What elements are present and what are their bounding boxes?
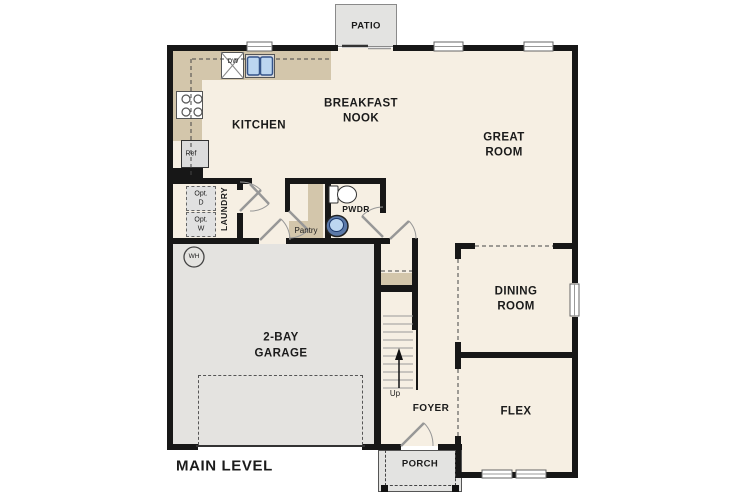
wall-right-lower [572,317,578,478]
fixture-label-water-heater: WH [189,254,200,261]
fixture-label-opt-dryer-line2: D [198,200,203,207]
wall-left [167,45,173,450]
wall-top-right [393,45,578,51]
wall-powder-east [380,178,386,213]
wall-closet-east [412,238,418,330]
wall-dining-flex-divider [455,352,578,358]
wall-closet-south [381,285,412,292]
wall-garage-bottom-left [167,444,198,450]
fixture-label-dishwasher: DW [228,59,239,66]
room-label-foyer: FOYER [413,404,449,414]
room-label-great-line1: GREAT [483,132,524,144]
room-label-laundry: LAUNDRY [220,187,229,231]
pantry-shelf-vertical [308,184,323,224]
wall-top-left [167,45,338,51]
dishwasher-box [221,52,244,79]
room-label-pantry: Pantry [294,227,317,235]
fixture-label-refrigerator: Ref [186,151,197,158]
garage-door-dashed-area [198,375,363,445]
closet-shelf [381,273,412,285]
fixture-label-opt-washer-line2: W [198,226,205,233]
room-label-breakfast-line1: BREAKFAST [324,98,398,110]
wall-below-ref [167,168,203,178]
room-label-kitchen: KITCHEN [232,120,286,132]
room-label-breakfast-line2: NOOK [343,113,379,125]
room-label-patio: PATIO [351,21,381,31]
wall-dining-north-2 [553,243,578,249]
room-label-garage-line1: 2-BAY [263,332,298,344]
wall-laundry-east-1 [237,178,243,190]
room-label-flex: FLEX [501,406,532,418]
stair-rail [416,330,418,390]
room-label-garage-line2: GARAGE [255,348,308,360]
level-title: MAIN LEVEL [176,459,273,474]
room-label-dining-line1: DINING [495,286,538,298]
wall-garage-east [374,238,381,450]
wall-pantry-west [285,178,290,212]
room-label-pwdr: PWDR [342,205,370,214]
porch-post-right [452,485,459,492]
room-label-dining-line2: ROOM [497,301,534,313]
kitchen-sink-unit [245,54,275,78]
stairs-up-label: Up [390,390,400,398]
wall-pantry-east [325,178,331,244]
room-label-porch: PORCH [402,459,438,469]
wall-flex-bottom-3 [545,472,578,478]
wall-kitchen-south-2 [287,178,386,184]
fixture-label-opt-washer-line1: Opt. [194,217,207,224]
dining-flex-floor-area [455,246,576,474]
room-label-great-line2: ROOM [485,147,522,159]
wall-garage-north-2 [286,238,380,244]
fixture-label-opt-dryer-line1: Opt. [194,191,207,198]
porch-post-left [381,485,388,492]
wall-garage-north-1 [167,238,259,244]
stove-box [176,91,203,119]
wall-closet-north [381,238,390,244]
wall-dining-west-stub-top [455,243,461,259]
wall-flex-bottom-2 [511,472,517,478]
garage-door-line [196,445,365,447]
floor-plan: KITCHEN BREAKFAST NOOK GREAT ROOM DINING… [0,0,750,500]
